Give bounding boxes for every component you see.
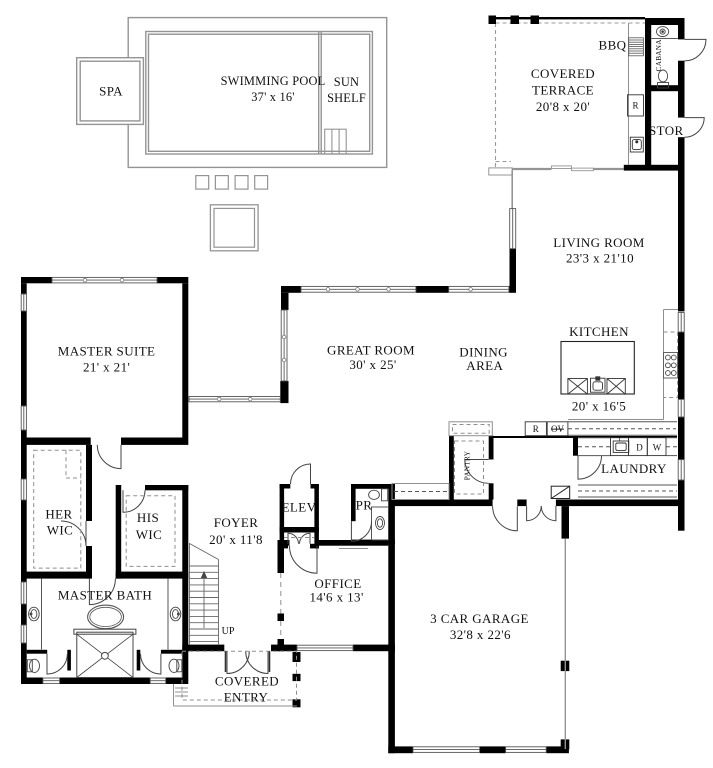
svg-text:37' x 16': 37' x 16' [251, 90, 294, 104]
svg-text:COVERED: COVERED [215, 674, 279, 689]
svg-text:SHELF: SHELF [327, 91, 366, 105]
svg-text:20'8 x 20': 20'8 x 20' [536, 99, 590, 114]
svg-text:CABANA: CABANA [655, 39, 663, 72]
svg-text:T: T [618, 436, 622, 443]
svg-text:SPA: SPA [99, 84, 123, 99]
svg-text:WIC: WIC [136, 527, 162, 542]
svg-text:SUN: SUN [334, 75, 359, 89]
svg-text:FOYER: FOYER [214, 515, 259, 530]
svg-text:AREA: AREA [466, 358, 503, 373]
svg-text:D: D [636, 443, 643, 453]
svg-text:3 CAR GARAGE: 3 CAR GARAGE [430, 611, 529, 626]
svg-text:PR: PR [356, 498, 373, 513]
svg-text:BBQ: BBQ [599, 38, 627, 53]
svg-text:R: R [632, 101, 638, 111]
svg-text:MASTER BATH: MASTER BATH [58, 588, 152, 603]
svg-text:WIC: WIC [47, 523, 73, 538]
svg-text:R: R [533, 424, 539, 434]
svg-text:HIS: HIS [137, 510, 159, 525]
svg-text:ELEV: ELEV [282, 500, 317, 515]
svg-text:MASTER SUITE: MASTER SUITE [58, 344, 156, 359]
svg-text:W: W [653, 443, 662, 453]
svg-text:20' x 11'8: 20' x 11'8 [209, 532, 263, 547]
svg-text:21' x 21': 21' x 21' [83, 360, 130, 375]
svg-text:UP: UP [222, 626, 235, 637]
svg-text:TERRACE: TERRACE [532, 83, 594, 98]
svg-text:PANTRY: PANTRY [464, 450, 472, 480]
svg-text:KITCHEN: KITCHEN [569, 324, 629, 339]
svg-text:COVERED: COVERED [531, 66, 595, 81]
svg-text:20' x 16'5: 20' x 16'5 [572, 399, 626, 414]
svg-text:STOR: STOR [649, 123, 684, 138]
svg-text:LIVING ROOM: LIVING ROOM [553, 235, 644, 250]
svg-text:GREAT ROOM: GREAT ROOM [327, 343, 415, 358]
svg-text:LAUNDRY: LAUNDRY [601, 461, 667, 476]
svg-text:ENTRY: ENTRY [224, 690, 269, 705]
svg-text:30' x 25': 30' x 25' [349, 357, 396, 372]
svg-text:23'3 x 21'10: 23'3 x 21'10 [566, 251, 634, 266]
svg-text:HER: HER [45, 507, 72, 522]
svg-text:OV: OV [551, 424, 564, 434]
svg-text:14'6 x 13': 14'6 x 13' [310, 590, 364, 605]
svg-text:32'8 x 22'6: 32'8 x 22'6 [450, 627, 511, 642]
svg-text:SWIMMING POOL: SWIMMING POOL [221, 74, 326, 88]
